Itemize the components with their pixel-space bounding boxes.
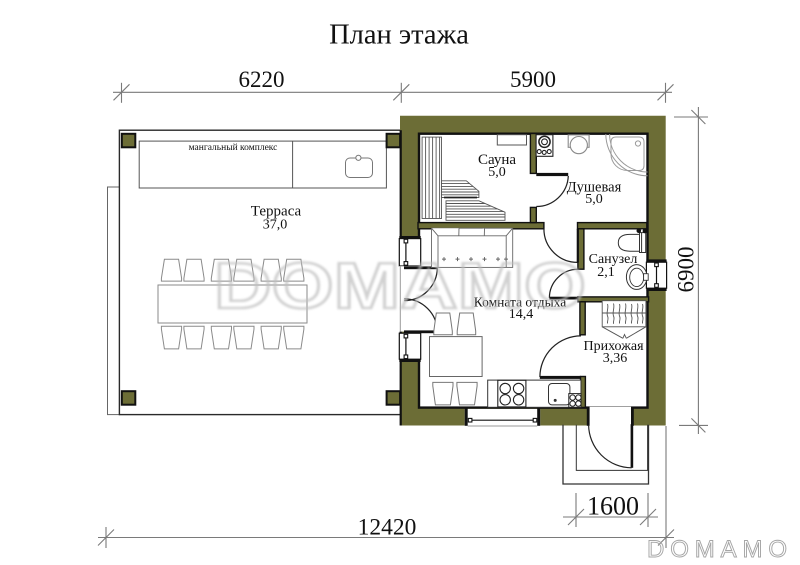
svg-text:2,1: 2,1 <box>597 265 615 280</box>
svg-text:6900: 6900 <box>674 247 699 293</box>
svg-text:5,0: 5,0 <box>488 165 506 180</box>
svg-text:37,0: 37,0 <box>263 218 288 233</box>
svg-text:3,36: 3,36 <box>603 351 628 366</box>
svg-text:6220: 6220 <box>239 67 285 92</box>
svg-text:5,0: 5,0 <box>585 192 603 207</box>
svg-text:1600: 1600 <box>587 492 639 521</box>
svg-text:5900: 5900 <box>510 67 556 92</box>
svg-text:План этажа: План этажа <box>329 20 469 51</box>
svg-text:мангальный комплекс: мангальный комплекс <box>189 142 278 153</box>
svg-text:DOMAMO: DOMAMO <box>647 536 787 563</box>
svg-text:DOMAMO: DOMAMO <box>214 249 586 322</box>
svg-text:12420: 12420 <box>358 515 417 541</box>
